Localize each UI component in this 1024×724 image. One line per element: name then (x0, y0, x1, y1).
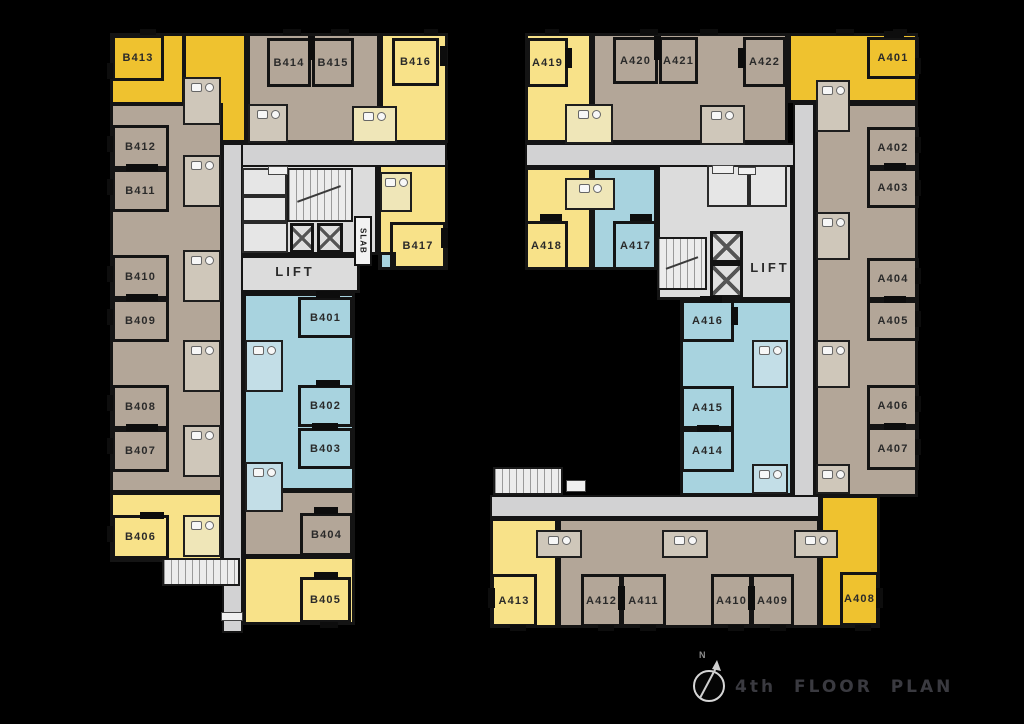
service-room (242, 222, 288, 253)
unit-label-a408: A408 (844, 593, 875, 605)
door-mark (314, 572, 338, 579)
bathroom-icon (380, 172, 412, 212)
unit-label-a420: A420 (620, 55, 651, 67)
bathroom-icon (183, 340, 221, 392)
door-mark (308, 36, 315, 60)
unit-a413: A413 (491, 574, 537, 627)
unit-a414: A414 (681, 429, 734, 472)
unit-a401: A401 (867, 37, 919, 79)
door-mark (598, 625, 614, 631)
a-corridor-h (525, 143, 795, 167)
door-mark (915, 268, 921, 284)
unit-a409: A409 (751, 574, 794, 627)
unit-label-a421: A421 (663, 55, 694, 67)
service-chip (566, 480, 586, 492)
door-mark (748, 586, 755, 610)
service-chip (221, 612, 243, 621)
door-mark (700, 296, 722, 303)
a-corridor-bottom (490, 495, 820, 518)
b-south-stairs-icon (162, 558, 240, 586)
bathroom-icon (662, 530, 708, 558)
unit-b403: B403 (298, 428, 353, 469)
bathroom-icon (752, 340, 788, 388)
door-mark (565, 48, 572, 68)
service-room (242, 196, 287, 222)
bathroom-icon (183, 250, 221, 302)
door-mark (107, 266, 113, 282)
door-mark (640, 625, 656, 631)
unit-label-b406: B406 (125, 531, 156, 543)
b-corridor-h (222, 143, 447, 167)
bathroom-icon (183, 515, 221, 557)
unit-label-a422: A422 (749, 56, 780, 68)
unit-b411: B411 (112, 169, 169, 212)
unit-b401: B401 (298, 297, 353, 338)
unit-label-a416: A416 (692, 315, 723, 327)
door-mark (441, 228, 448, 248)
unit-label-b401: B401 (310, 312, 341, 324)
unit-label-a419: A419 (532, 57, 563, 69)
door-mark (107, 179, 113, 195)
door-mark (107, 526, 113, 542)
unit-label-a406: A406 (877, 400, 908, 412)
door-mark (107, 438, 113, 454)
unit-a417: A417 (613, 221, 658, 270)
door-mark (314, 507, 338, 514)
door-mark (312, 423, 338, 430)
unit-b410: B410 (112, 255, 169, 299)
door-mark (697, 425, 719, 432)
door-mark (884, 423, 906, 430)
door-mark (915, 180, 921, 196)
unit-b416: B416 (392, 38, 439, 86)
lift-shaft-icon (290, 223, 314, 253)
a-corridor-v (793, 103, 815, 518)
bathroom-icon (816, 212, 850, 260)
unit-label-b416: B416 (400, 56, 431, 68)
bathroom-icon (565, 104, 613, 144)
door-mark (126, 164, 158, 171)
bathroom-icon (816, 80, 850, 132)
unit-b407: B407 (112, 429, 169, 472)
unit-label-b417: B417 (402, 240, 433, 252)
unit-a407: A407 (867, 427, 919, 470)
unit-label-b404: B404 (311, 529, 342, 541)
door-mark (855, 625, 871, 631)
door-mark (320, 622, 338, 628)
bathroom-icon (794, 530, 838, 558)
unit-b415: B415 (312, 38, 354, 87)
unit-label-b413: B413 (122, 52, 153, 64)
lift-shaft-icon (710, 263, 743, 298)
unit-label-b410: B410 (125, 271, 156, 283)
unit-label-a415: A415 (692, 402, 723, 414)
lift-shaft-icon (710, 231, 743, 263)
unit-a406: A406 (867, 385, 919, 427)
corridor-junction (795, 497, 813, 516)
door-mark (140, 29, 156, 35)
door-mark (107, 63, 113, 79)
unit-label-b408: B408 (125, 401, 156, 413)
unit-label-a412: A412 (586, 595, 617, 607)
unit-label-a413: A413 (498, 595, 529, 607)
floor-plan: N 4th FLOOR PLAN B413B412B411B410B409B40… (0, 0, 1024, 724)
unit-label-b412: B412 (125, 141, 156, 153)
bathroom-icon (700, 105, 745, 145)
door-mark (316, 291, 340, 298)
unit-a411: A411 (621, 574, 666, 627)
unit-label-b405: B405 (310, 594, 341, 606)
bathroom-icon (248, 104, 288, 143)
bathroom-icon (183, 425, 221, 477)
door-mark (738, 48, 745, 68)
door-mark (140, 512, 164, 519)
door-mark (700, 29, 718, 35)
door-mark (728, 625, 744, 631)
unit-a419: A419 (527, 38, 568, 87)
door-mark (488, 588, 495, 608)
unit-label-a407: A407 (877, 443, 908, 455)
lift-label: LIFT (744, 254, 796, 280)
unit-a403: A403 (867, 168, 919, 208)
bathroom-icon (352, 106, 397, 143)
unit-a404: A404 (867, 258, 919, 300)
door-mark (915, 58, 921, 74)
unit-label-a403: A403 (877, 182, 908, 194)
unit-label-b403: B403 (310, 443, 341, 455)
unit-b417: B417 (390, 222, 446, 269)
unit-b404: B404 (300, 513, 353, 556)
unit-label-a410: A410 (716, 595, 747, 607)
door-mark (316, 380, 340, 387)
unit-a408: A408 (840, 572, 879, 626)
door-mark (893, 29, 907, 35)
bathroom-icon (245, 462, 283, 512)
bathroom-icon (816, 464, 850, 494)
door-mark (331, 29, 349, 35)
door-mark (915, 439, 921, 455)
bathroom-icon (183, 77, 221, 125)
door-mark (126, 294, 158, 301)
service-chip (268, 166, 288, 175)
unit-a415: A415 (681, 386, 734, 429)
unit-label-a418: A418 (531, 240, 562, 252)
bathroom-icon (183, 155, 221, 207)
door-mark (424, 29, 438, 35)
bathroom-icon (565, 178, 615, 210)
unit-b408: B408 (112, 385, 169, 429)
door-mark (731, 307, 738, 325)
unit-label-b414: B414 (273, 57, 304, 69)
corridor-junction (224, 145, 241, 165)
unit-b402: B402 (298, 385, 353, 427)
unit-a420: A420 (613, 37, 658, 84)
door-mark (126, 424, 158, 431)
door-mark (640, 29, 658, 35)
unit-b406: B406 (112, 515, 169, 559)
unit-b405: B405 (300, 577, 351, 623)
floor-title: 4th FLOOR PLAN (735, 677, 953, 697)
unit-b414: B414 (267, 38, 311, 87)
unit-label-b402: B402 (310, 400, 341, 412)
unit-label-b411: B411 (125, 185, 156, 197)
unit-a416: A416 (681, 300, 734, 342)
unit-a410: A410 (711, 574, 752, 627)
service-chip (738, 167, 756, 175)
door-mark (545, 29, 559, 35)
unit-a405: A405 (867, 300, 919, 341)
door-mark (876, 588, 883, 608)
door-mark (618, 586, 625, 610)
door-mark (440, 46, 447, 66)
door-mark (107, 395, 113, 411)
bathroom-icon (816, 340, 850, 388)
door-mark (107, 136, 113, 152)
door-mark (915, 311, 921, 327)
corridor-junction (795, 145, 813, 165)
door-mark (283, 29, 301, 35)
unit-a402: A402 (867, 127, 919, 168)
bathroom-icon (536, 530, 582, 558)
lift-shaft-icon (317, 223, 343, 253)
unit-label-a404: A404 (877, 273, 908, 285)
unit-b413: B413 (112, 35, 164, 81)
north-arrow-graphic (688, 653, 732, 707)
lift-label: LIFT (240, 258, 350, 284)
unit-a418: A418 (525, 221, 568, 270)
unit-a421: A421 (659, 37, 698, 84)
b-main-stairs-icon (287, 168, 353, 222)
unit-label-a417: A417 (620, 240, 651, 252)
unit-label-a405: A405 (877, 315, 908, 327)
unit-label-b407: B407 (125, 445, 156, 457)
bathroom-icon (245, 340, 283, 392)
unit-b412: B412 (112, 125, 169, 169)
door-mark (630, 214, 652, 221)
unit-a412: A412 (581, 574, 622, 627)
unit-label-a401: A401 (877, 52, 908, 64)
door-mark (540, 214, 562, 221)
unit-b409: B409 (112, 299, 169, 342)
unit-label-b409: B409 (125, 315, 156, 327)
door-mark (654, 36, 661, 60)
north-arrow-icon: N (688, 653, 732, 707)
unit-a422: A422 (743, 37, 786, 87)
door-mark (884, 296, 906, 303)
door-mark (107, 309, 113, 325)
a-core-stairs-icon (657, 237, 707, 290)
unit-label-a409: A409 (757, 595, 788, 607)
door-mark (770, 625, 786, 631)
door-mark (510, 625, 526, 631)
service-chip (712, 165, 734, 174)
slab-label: SLAB (354, 216, 372, 266)
unit-label-a411: A411 (628, 595, 659, 607)
door-mark (915, 137, 921, 153)
unit-label-a402: A402 (877, 142, 908, 154)
door-mark (915, 396, 921, 412)
door-mark (836, 29, 854, 35)
unit-label-a414: A414 (692, 445, 723, 457)
a-south-stairs-icon (493, 467, 563, 495)
bathroom-icon (752, 464, 788, 494)
unit-label-b415: B415 (317, 57, 348, 69)
door-mark (884, 163, 906, 170)
